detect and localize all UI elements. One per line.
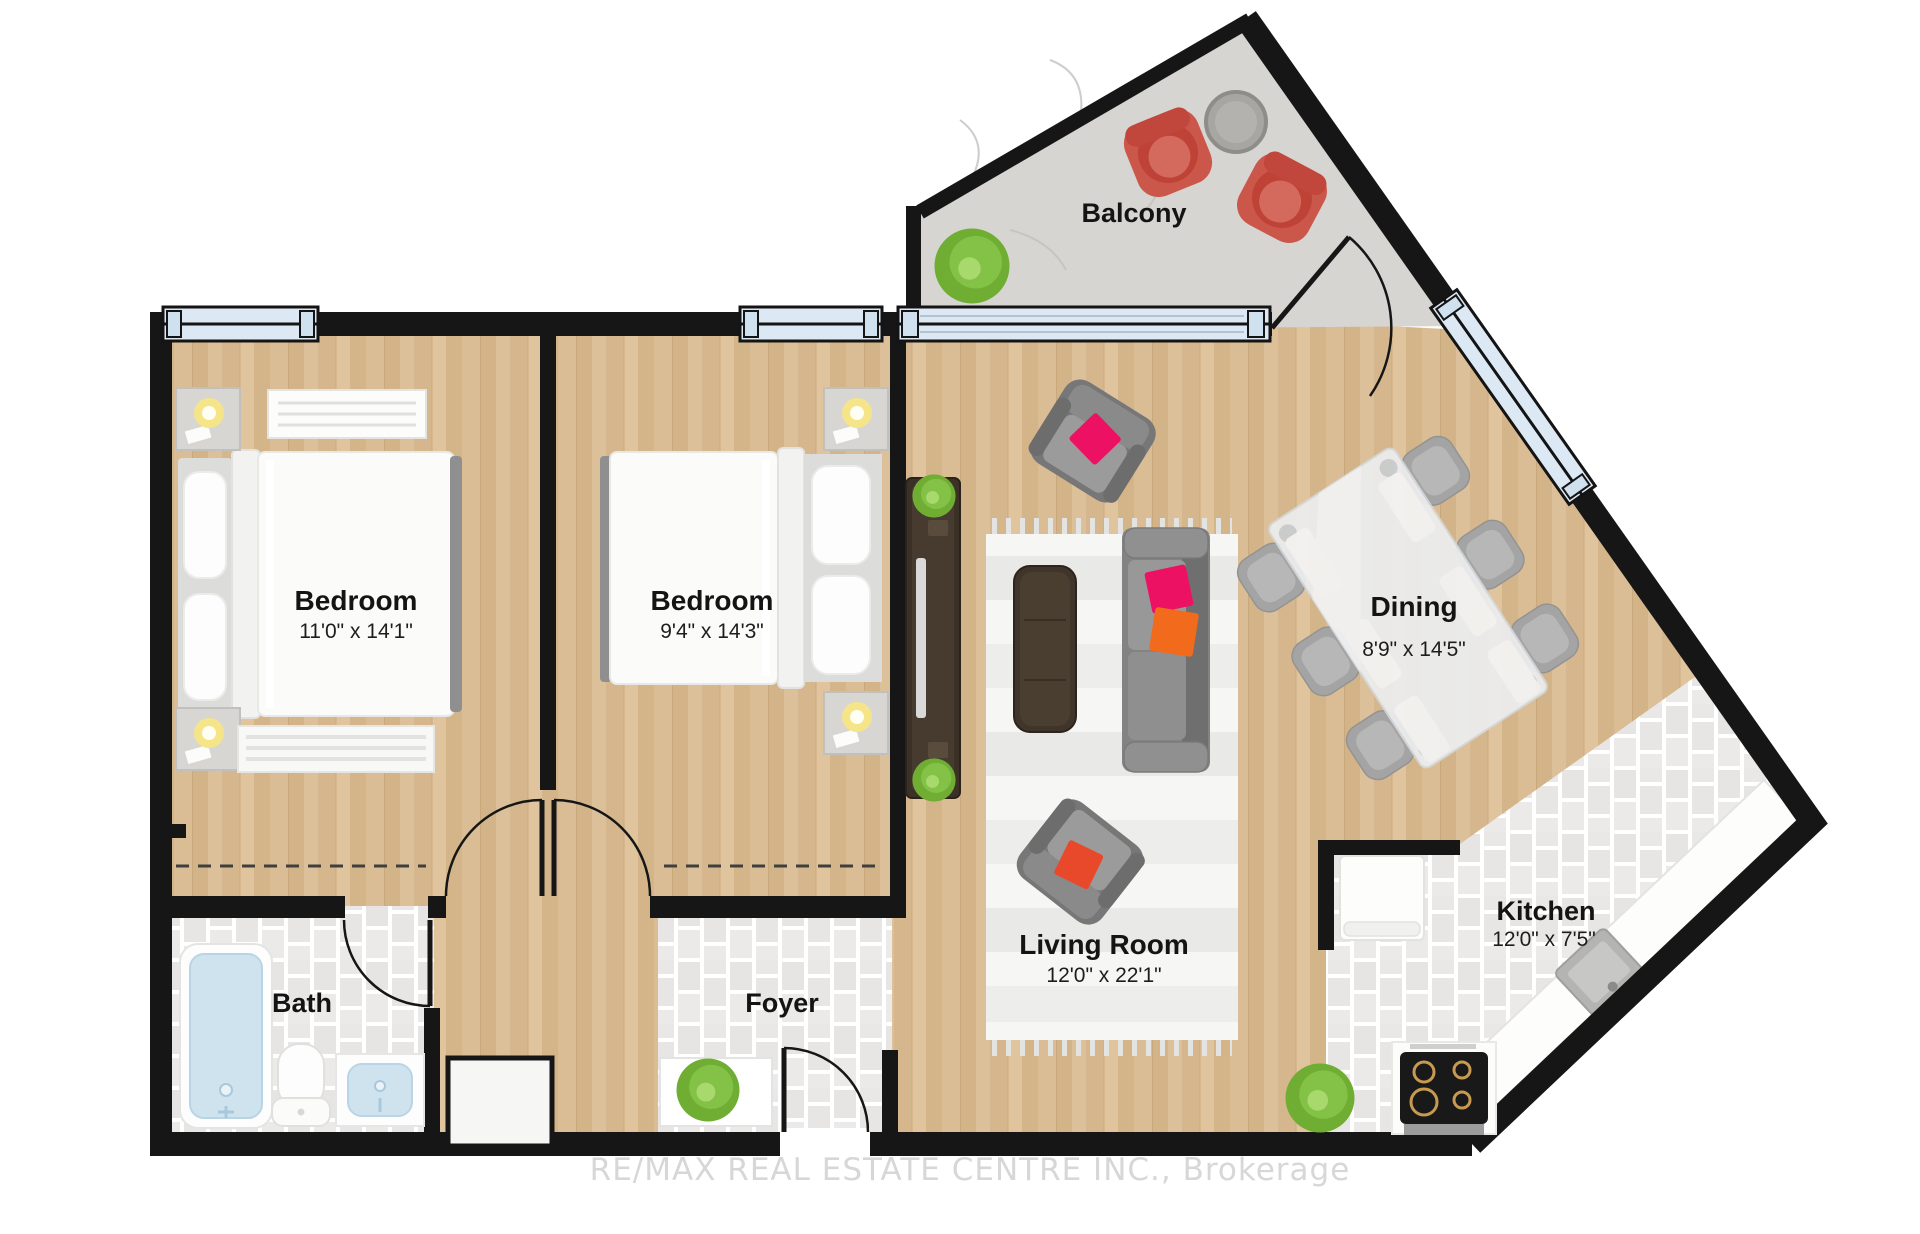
- floorplan-svg: Balcony Bedroom 11'0" x 14'1" Bedroom 9'…: [0, 0, 1920, 1234]
- dresser-bedroom1: [268, 390, 426, 438]
- coffee-table: [1014, 566, 1076, 732]
- balcony-table: [1206, 92, 1266, 152]
- nightstand-icon: [824, 692, 888, 754]
- label-bath: Bath: [272, 988, 332, 1018]
- plant-icon: [1286, 1064, 1355, 1133]
- window-bedroom1: [163, 307, 318, 341]
- nightstand-icon: [176, 388, 240, 450]
- bench-bedroom1: [238, 726, 434, 772]
- hall-closet: [448, 1058, 552, 1146]
- toilet-icon: [272, 1044, 330, 1126]
- nightstand-icon: [176, 708, 240, 770]
- window-bedroom2: [740, 307, 882, 341]
- label-bedroom1-name: Bedroom: [295, 585, 418, 616]
- plant-icon: [935, 229, 1010, 304]
- nightstand-icon: [824, 388, 888, 450]
- label-living-name: Living Room: [1019, 929, 1189, 960]
- pillow-pink: [1144, 564, 1194, 614]
- label-living-dims: 12'0" x 22'1": [1046, 964, 1161, 987]
- fridge-icon: [1340, 856, 1424, 940]
- label-kitchen-name: Kitchen: [1496, 896, 1595, 926]
- foyer-console: [660, 1058, 772, 1126]
- bed-bedroom2: [600, 448, 882, 688]
- label-kitchen-dims: 12'0" x 7'5": [1492, 928, 1596, 951]
- plant-icon: [912, 474, 955, 517]
- label-bedroom2-dims: 9'4" x 14'3": [660, 620, 764, 643]
- stove-icon: [1392, 1042, 1496, 1135]
- window-living-balcony: [898, 307, 1270, 341]
- label-balcony: Balcony: [1081, 198, 1186, 228]
- bathtub-icon: [180, 944, 272, 1128]
- label-bedroom1-dims: 11'0" x 14'1": [299, 620, 413, 643]
- pillow-orange: [1149, 607, 1199, 657]
- label-foyer: Foyer: [745, 988, 819, 1018]
- floorplan: Balcony Bedroom 11'0" x 14'1" Bedroom 9'…: [0, 0, 1920, 1234]
- plant-icon: [912, 758, 955, 801]
- plant-icon: [677, 1059, 740, 1122]
- label-bedroom2-name: Bedroom: [651, 585, 774, 616]
- bed-bedroom1: [178, 450, 462, 718]
- sofa: [1122, 528, 1210, 772]
- label-dining-name: Dining: [1370, 591, 1457, 622]
- label-dining-dims: 8'9" x 14'5": [1362, 638, 1466, 661]
- watermark: RE/MAX REAL ESTATE CENTRE INC., Brokerag…: [590, 1152, 1351, 1188]
- bath-sink-icon: [336, 1054, 424, 1126]
- tv-console: [906, 478, 960, 798]
